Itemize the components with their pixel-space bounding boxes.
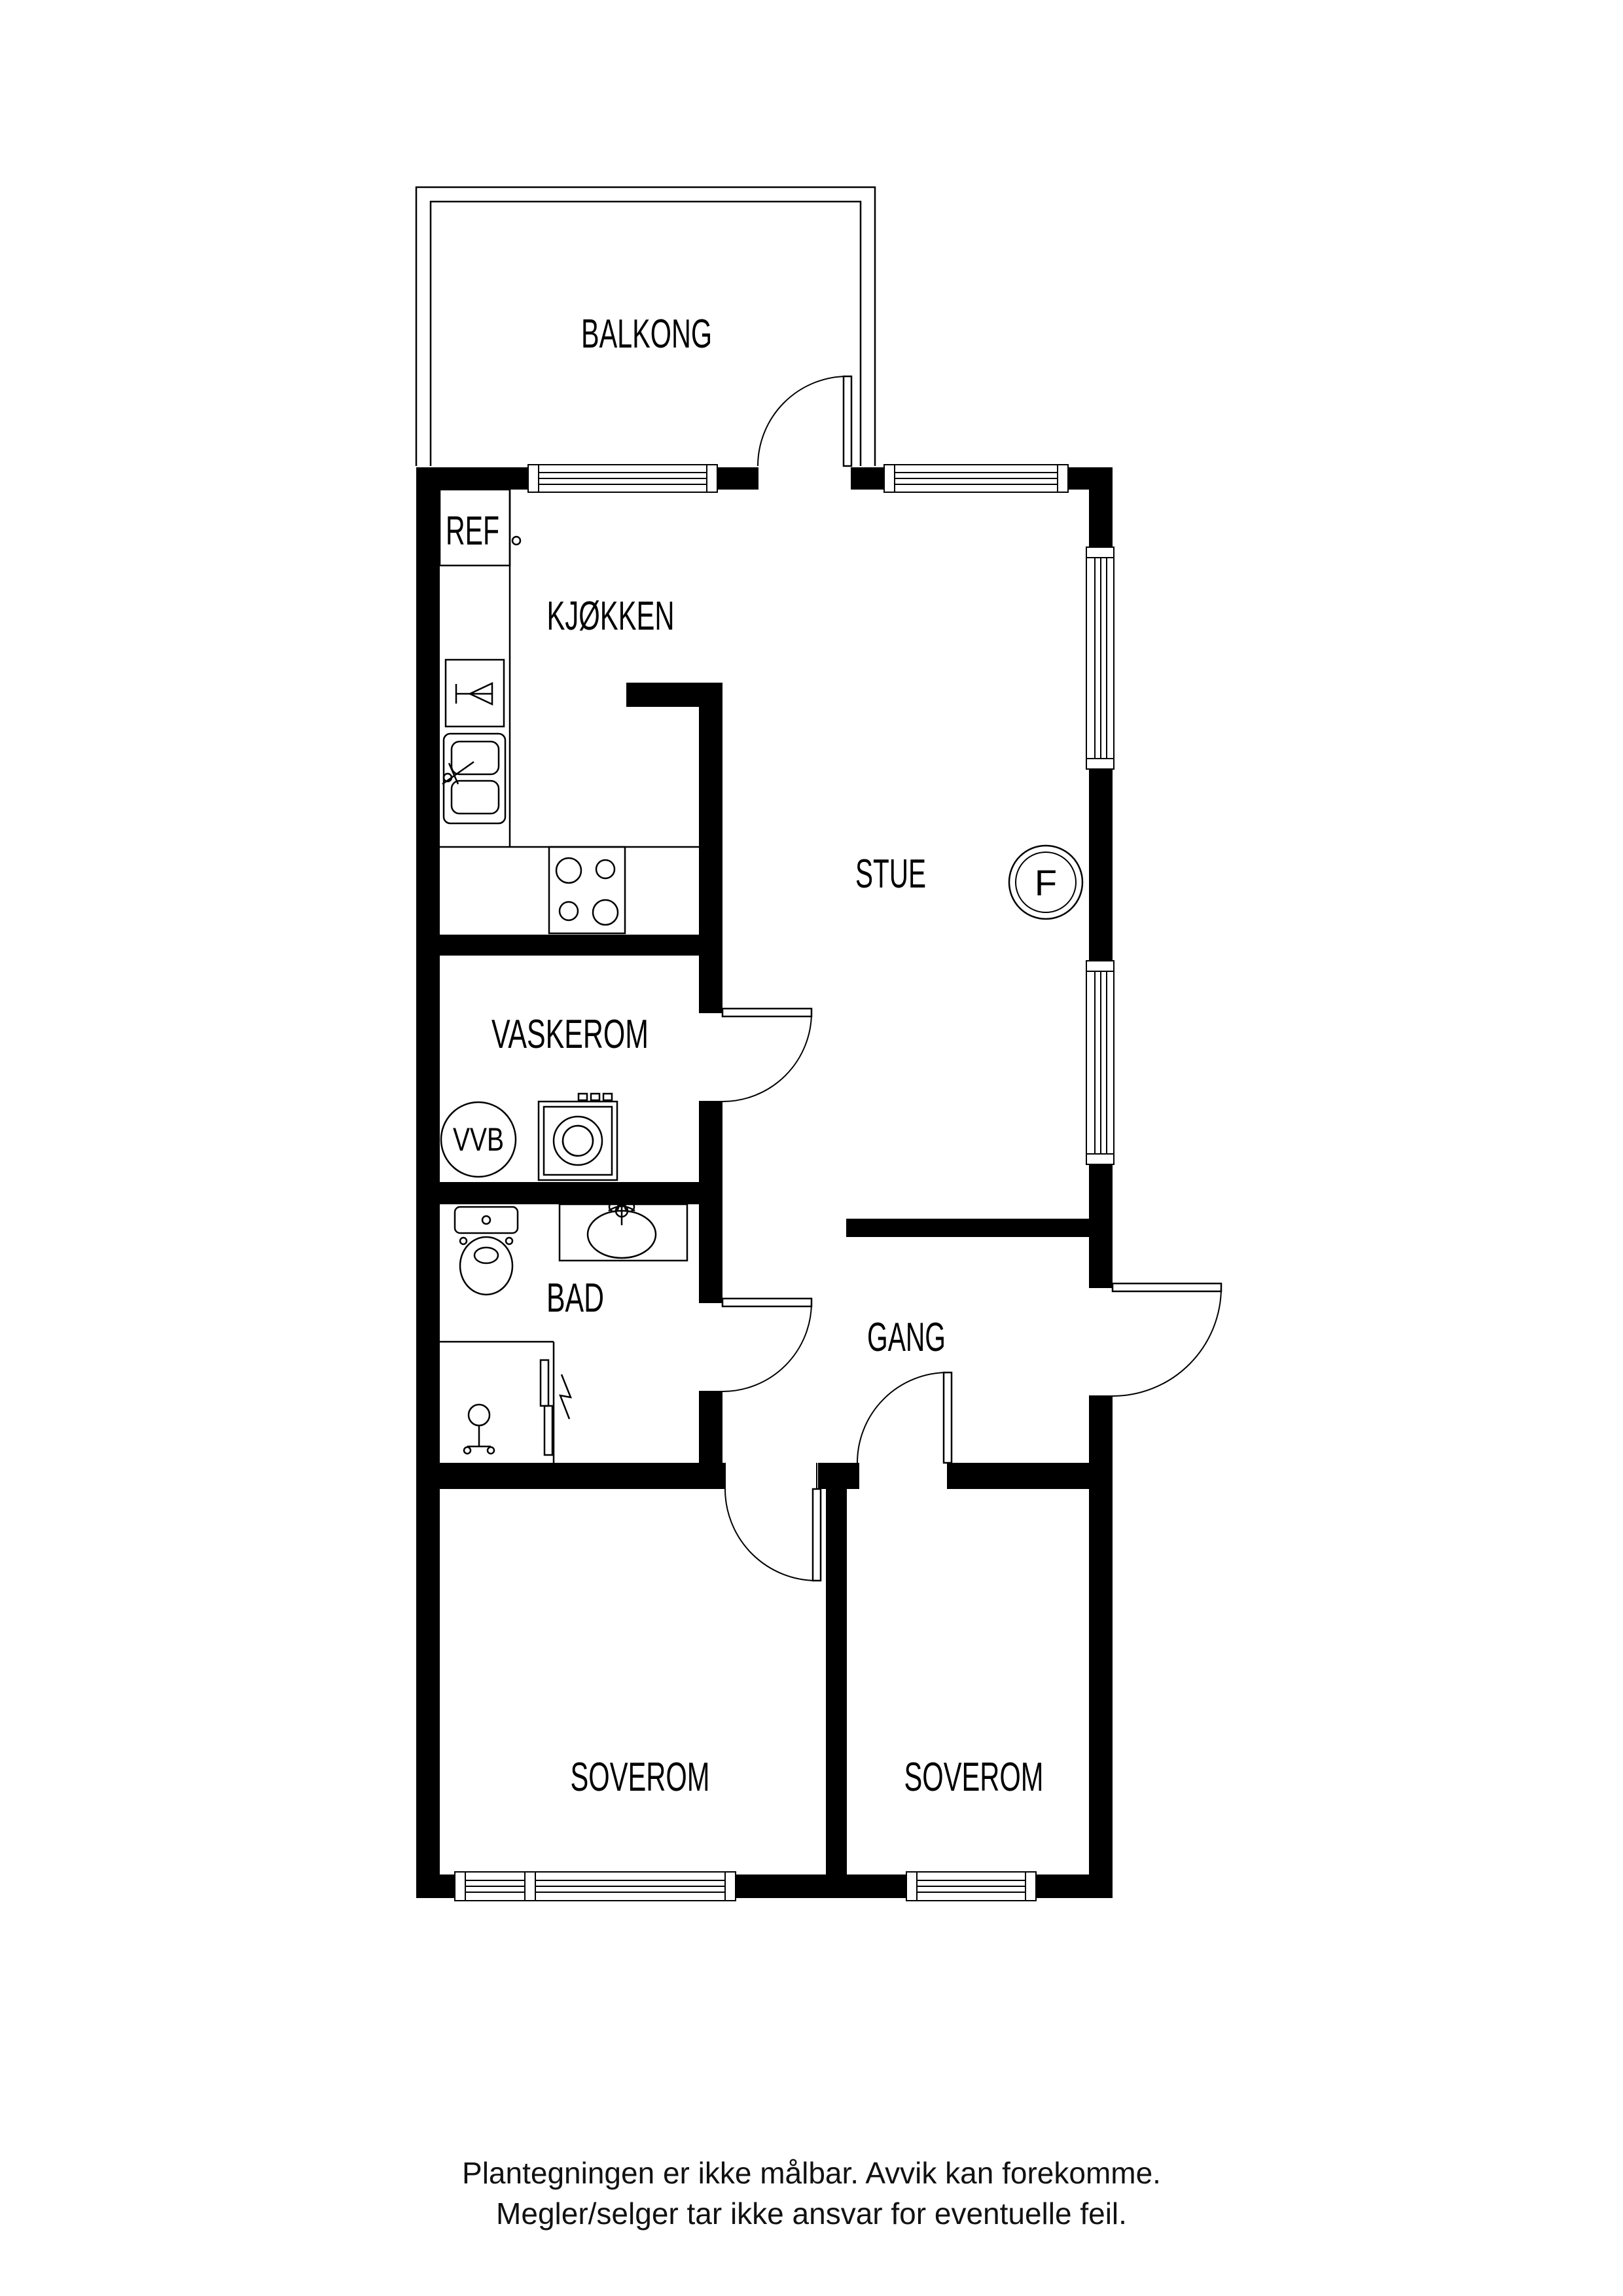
wall-right-2 — [1089, 769, 1113, 961]
wall-left — [416, 467, 440, 1898]
room-label-living: STUE — [855, 852, 926, 897]
disclaimer: Plantegningen er ikke målbar. Avvik kan … — [462, 2156, 1161, 2231]
wall-laundry-bottom — [440, 1182, 699, 1204]
kitchen-fixtures — [440, 490, 699, 933]
interior-walls — [440, 683, 1089, 1874]
window-living-right-lower — [1086, 961, 1114, 1164]
wall-hall-bottom-2 — [818, 1463, 859, 1489]
room-label-bedroom-left: SOVEROM — [571, 1755, 710, 1800]
wall-hall-top — [846, 1219, 1089, 1237]
wall-top-3 — [851, 467, 884, 490]
bedroom-left-door — [725, 1489, 821, 1581]
bath-sink-icon — [560, 1202, 687, 1261]
fireplace-icon: F — [1009, 846, 1082, 919]
toilet-icon — [455, 1207, 518, 1295]
doors — [722, 376, 1221, 1581]
room-label-laundry: VASKEROM — [491, 1012, 649, 1057]
stove-icon — [549, 847, 625, 933]
room-label-fridge: REF — [446, 509, 499, 554]
room-label-balcony: BALKONG — [581, 312, 712, 357]
wall-right-1 — [1089, 467, 1113, 547]
wall-bedroom-divider — [826, 1489, 847, 1874]
window-kitchen — [528, 465, 717, 492]
bath-fixtures — [440, 1202, 687, 1463]
wall-hall-bottom-1 — [440, 1463, 725, 1489]
kitchen-sink-icon — [442, 734, 505, 823]
washing-machine-icon — [539, 1094, 617, 1180]
window-living-top — [884, 465, 1068, 492]
fireplace-label: F — [1035, 862, 1057, 903]
wall-kitchen-bottom — [440, 935, 699, 956]
wall-right-4 — [1089, 1396, 1113, 1898]
window-bedroom-left — [455, 1872, 736, 1901]
room-label-hallway: GANG — [867, 1315, 946, 1360]
bedroom-right-door — [857, 1372, 952, 1463]
laundry-door — [722, 1009, 811, 1102]
wall-laundry-right — [699, 1102, 722, 1302]
room-label-kitchen: KJØKKEN — [547, 594, 675, 639]
floor-plan: F BALKONG KJØKKEN REF STUE VASKEROM VVB … — [0, 0, 1623, 2296]
wall-kitchen-stub-v — [699, 707, 722, 1013]
room-label-bathroom: BAD — [546, 1276, 604, 1321]
window-living-right-upper — [1086, 547, 1114, 769]
entry-door — [1113, 1283, 1221, 1396]
disclaimer-line1: Plantegningen er ikke målbar. Avvik kan … — [462, 2156, 1161, 2190]
wall-bottom-2 — [736, 1874, 906, 1898]
room-labels: BALKONG KJØKKEN REF STUE VASKEROM VVB BA… — [446, 312, 1044, 1800]
room-label-water-heater: VVB — [453, 1121, 504, 1158]
disclaimer-line2: Megler/selger tar ikke ansvar for eventu… — [496, 2197, 1127, 2231]
window-bedroom-right — [906, 1872, 1036, 1901]
wall-kitchen-stub-h — [626, 683, 722, 707]
wall-right-3 — [1089, 1164, 1113, 1287]
dishwasher-icon — [446, 660, 504, 726]
bath-door — [722, 1299, 811, 1391]
wall-top-2 — [717, 467, 758, 490]
wall-hall-bottom-3 — [948, 1463, 1089, 1489]
balcony-door — [758, 376, 851, 466]
wall-bottom-1 — [416, 1874, 455, 1898]
shower-icon — [440, 1342, 571, 1463]
room-label-bedroom-right: SOVEROM — [904, 1755, 1044, 1800]
